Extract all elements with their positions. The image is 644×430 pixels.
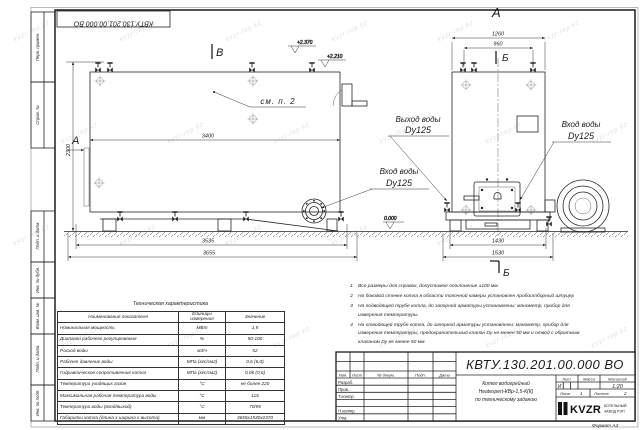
cell: °С: [179, 391, 226, 402]
drawing-sheet: КВТУ.130.201.00.000 ВО Перв. примен. Спр…: [0, 0, 644, 430]
note-item: 3На подводящей трубе котла, до запорной …: [345, 303, 591, 320]
tb-col-podp: Подп.: [415, 373, 426, 378]
cell: Гидравлическое сопротивление котла: [58, 368, 179, 379]
section-b-bottom-label: Б: [503, 268, 510, 279]
dim-960: 960: [493, 42, 503, 48]
note-text: На боковой стенке котла в области топочн…: [358, 293, 574, 302]
cell: МПа (кгс/см2): [179, 368, 226, 379]
outlet-dn: Dy125: [405, 125, 432, 135]
cell: 3655х1530х2370: [226, 413, 285, 424]
tb-col-izm: Изм.: [339, 373, 348, 378]
logo-sub1: КОТЕЛЬНЫЙ: [604, 404, 627, 408]
tech-table: Наименование показателя Единицы измерени…: [57, 311, 285, 425]
logo-sub2: ЗАВОД РЭП: [604, 410, 625, 414]
tb-row-razrab: Разраб.: [338, 380, 353, 385]
tech-th-units: Единицы измерения: [179, 312, 226, 323]
cell: 52: [226, 345, 285, 356]
note-text: На подводящей трубе котла, до запорной а…: [358, 303, 591, 320]
format-label: Формат А3: [592, 423, 619, 429]
tb-sheets-value: 2: [623, 391, 627, 396]
tb-mass-header: Масса: [583, 377, 596, 382]
section-a-label: А: [71, 135, 79, 147]
title-block: КВТУ.130.201.00.000 ВО Изм. Лист № докум…: [336, 352, 635, 421]
dim-3535: 3535: [202, 239, 215, 245]
table-row: Номинальная мощностьМВт1,5: [58, 323, 285, 334]
cell: 50-100: [226, 334, 285, 345]
ground-line: [64, 232, 628, 238]
tb-row-prov: Пров.: [338, 387, 349, 392]
boiler-front-view: [84, 63, 367, 231]
cell: мм: [179, 413, 226, 424]
tb-lit-header: Лит.: [561, 377, 571, 382]
cell: Расход воды: [58, 345, 179, 356]
elevation-2370: +2.370: [297, 40, 313, 46]
tech-table-title: Техническая характеристика: [57, 297, 284, 311]
tb-lit-value: И: [558, 384, 562, 390]
dim-1260: 1260: [492, 32, 505, 38]
margin-label: Инв. № дубл.: [35, 267, 40, 293]
inlet-front-label: Вход воды: [380, 167, 419, 176]
top-stamp-text: КВТУ.130.201.00.000 ВО: [73, 20, 153, 27]
table-row: Расход водым3/ч52: [58, 345, 285, 356]
blower-fan: [557, 180, 609, 232]
inlet-rear-label: Вход воды: [562, 120, 601, 129]
cell: МВт: [179, 323, 226, 334]
table-row: Температура воды (вход/выход)°С70/95: [58, 402, 285, 413]
table-row: Максимальная рабочая температура воды°С1…: [58, 391, 285, 402]
outlet-label: Выход воды: [396, 115, 441, 124]
doc-title-line2: Heatexpert-КВр-1,5-К(К): [479, 389, 534, 395]
cell: °С: [179, 402, 226, 413]
top-stamp: КВТУ.130.201.00.000 ВО: [57, 11, 170, 27]
cell: Температура воды (вход/выход): [58, 402, 179, 413]
cell: 0,6 (6,0): [226, 357, 285, 368]
inlet-rear-dn: Dy125: [568, 131, 595, 141]
see-note-text: см. п. 2: [260, 97, 295, 106]
tb-row-tkontr: Т.контр.: [338, 394, 355, 399]
dim-1430: 1430: [492, 239, 505, 245]
margin-label: Подп. и дата: [35, 222, 40, 250]
tb-col-data: Дата: [438, 373, 450, 378]
section-b-top-label: Б: [502, 53, 509, 64]
cell: Диапазон рабочего регулирования: [58, 334, 179, 345]
tb-row-utv: Утв.: [338, 416, 348, 421]
cell: 1,5: [226, 323, 285, 334]
elevation-0000: 0.000: [384, 216, 397, 222]
tb-scale-header: Масштаб: [608, 377, 627, 382]
dim-3400: 3400: [202, 134, 215, 140]
cell: м3/ч: [179, 345, 226, 356]
cell: Габариты котла (длина х ширина х высота): [58, 413, 179, 424]
cell: Температура уходящих газов: [58, 379, 179, 390]
tech-table-header: Наименование показателя Единицы измерени…: [58, 312, 285, 323]
inlet-front-dn: Dy125: [386, 178, 413, 188]
cell: Максимальная рабочая температура воды: [58, 391, 179, 402]
tb-sheet-label: Лист: [559, 391, 571, 396]
cell: не более 220: [226, 379, 285, 390]
notes-list: 1Все размеры для справок, допустимое отк…: [345, 283, 591, 349]
tb-scale-value: 1:20: [612, 384, 624, 390]
dim-3655: 3655: [203, 251, 216, 257]
front-base: [100, 219, 338, 231]
view-a-label: А: [491, 5, 501, 20]
cell: 115: [226, 391, 285, 402]
note-item: 1Все размеры для справок, допустимое отк…: [345, 283, 591, 292]
doc-number: КВТУ.130.201.00.000 ВО: [466, 357, 624, 372]
cell: %: [179, 334, 226, 345]
tb-sheets-label: Листов: [593, 391, 609, 396]
margin-label: Перв. примен.: [35, 33, 40, 62]
note-item: 2На боковой стенке котла в области топоч…: [345, 293, 591, 302]
margin-label: Подп. и дата: [35, 345, 40, 373]
tb-col-docnum: № докум.: [377, 373, 395, 378]
doc-title-line3: по техническому заданию: [475, 397, 537, 403]
tb-row-nkontr: Н.контр.: [338, 409, 356, 414]
logo-text: KVZR: [570, 404, 601, 416]
margin-label: Инв. № подл.: [35, 390, 40, 417]
table-row: Диапазон рабочего регулирования%50-100: [58, 334, 285, 345]
table-row: Температура уходящих газов°Сне более 220: [58, 379, 285, 390]
boiler-rear-view: [444, 58, 609, 236]
left-margin-strip: Перв. примен. Справ. № Подп. и дата Инв.…: [31, 12, 55, 421]
cell: Рабочее давление воды: [58, 357, 179, 368]
side-ladder: [84, 148, 89, 206]
table-row: Рабочее давление водыМПа (кгс/см2)0,6 (6…: [58, 357, 285, 368]
section-b-label: В: [216, 47, 223, 59]
tb-col-list: Лист: [351, 373, 363, 378]
elevation-2210: +2.210: [327, 54, 343, 60]
table-row: Габариты котла (длина х ширина х высота)…: [58, 413, 285, 424]
tech-th-value: Значение: [226, 312, 285, 323]
note-text: Все размеры для справок, допустимое откл…: [358, 283, 499, 292]
dim-1530: 1530: [492, 251, 505, 257]
margin-label: Справ. №: [35, 105, 40, 125]
cell: 0,06 (0,6): [226, 368, 285, 379]
cell: 70/95: [226, 402, 285, 413]
doc-title-line1: Котел водогрейный: [482, 380, 530, 387]
tech-characteristics: Техническая характеристика Наименование …: [57, 297, 284, 425]
cell: Номинальная мощность: [58, 323, 179, 334]
note-item: 4На отводящей трубе котла, до запорной а…: [345, 322, 591, 348]
cell: °С: [179, 379, 226, 390]
tech-th-name: Наименование показателя: [58, 312, 179, 323]
table-row: Гидравлическое сопротивление котлаМПа (к…: [58, 368, 285, 379]
cell: МПа (кгс/см2): [179, 357, 226, 368]
margin-label: Взам. инв. №: [35, 302, 40, 329]
note-text: На отводящей трубе котла, до запорной ар…: [358, 322, 591, 348]
